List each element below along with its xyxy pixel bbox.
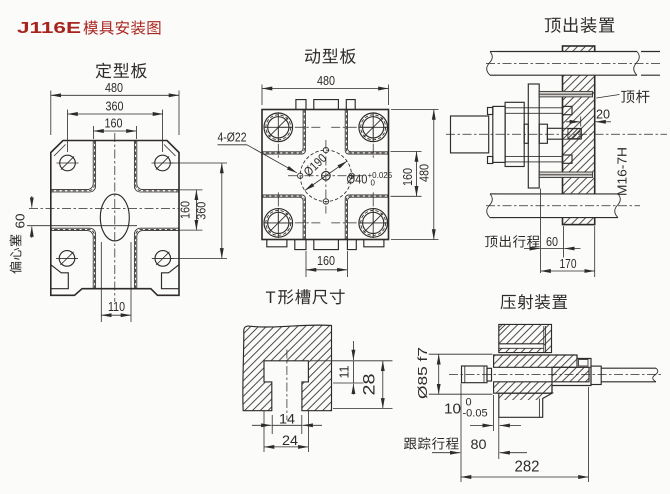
svg-text:110: 110 [108, 300, 125, 314]
svg-text:24: 24 [282, 432, 298, 448]
svg-text:160: 160 [317, 254, 335, 268]
svg-text:T: T [265, 289, 275, 307]
svg-text:160: 160 [401, 168, 415, 186]
svg-text:-0.05: -0.05 [463, 408, 488, 420]
svg-text:360: 360 [106, 100, 124, 114]
svg-text:480: 480 [418, 164, 432, 182]
svg-text:60: 60 [546, 235, 558, 249]
svg-text:Ø40: Ø40 [347, 173, 368, 187]
svg-text:160: 160 [179, 201, 193, 219]
svg-text:60: 60 [14, 213, 28, 228]
svg-text:170: 170 [560, 257, 577, 271]
svg-text:4-Ø22: 4-Ø22 [218, 131, 247, 145]
svg-text:80: 80 [471, 437, 487, 452]
svg-text:160: 160 [105, 117, 123, 131]
svg-text:M16-7H: M16-7H [616, 147, 630, 196]
svg-text:480: 480 [317, 74, 335, 88]
svg-text:14: 14 [279, 411, 295, 427]
svg-text:360: 360 [195, 202, 209, 220]
svg-text:20: 20 [596, 108, 610, 122]
svg-text:0: 0 [371, 179, 376, 188]
svg-text:480: 480 [105, 81, 123, 95]
svg-text:282: 282 [515, 459, 540, 476]
svg-text:28: 28 [360, 374, 379, 396]
svg-text:Ø85 f7: Ø85 f7 [415, 347, 430, 399]
svg-text:11: 11 [338, 365, 352, 378]
svg-text:J116E: J116E [17, 20, 81, 37]
svg-text:10: 10 [444, 402, 461, 418]
